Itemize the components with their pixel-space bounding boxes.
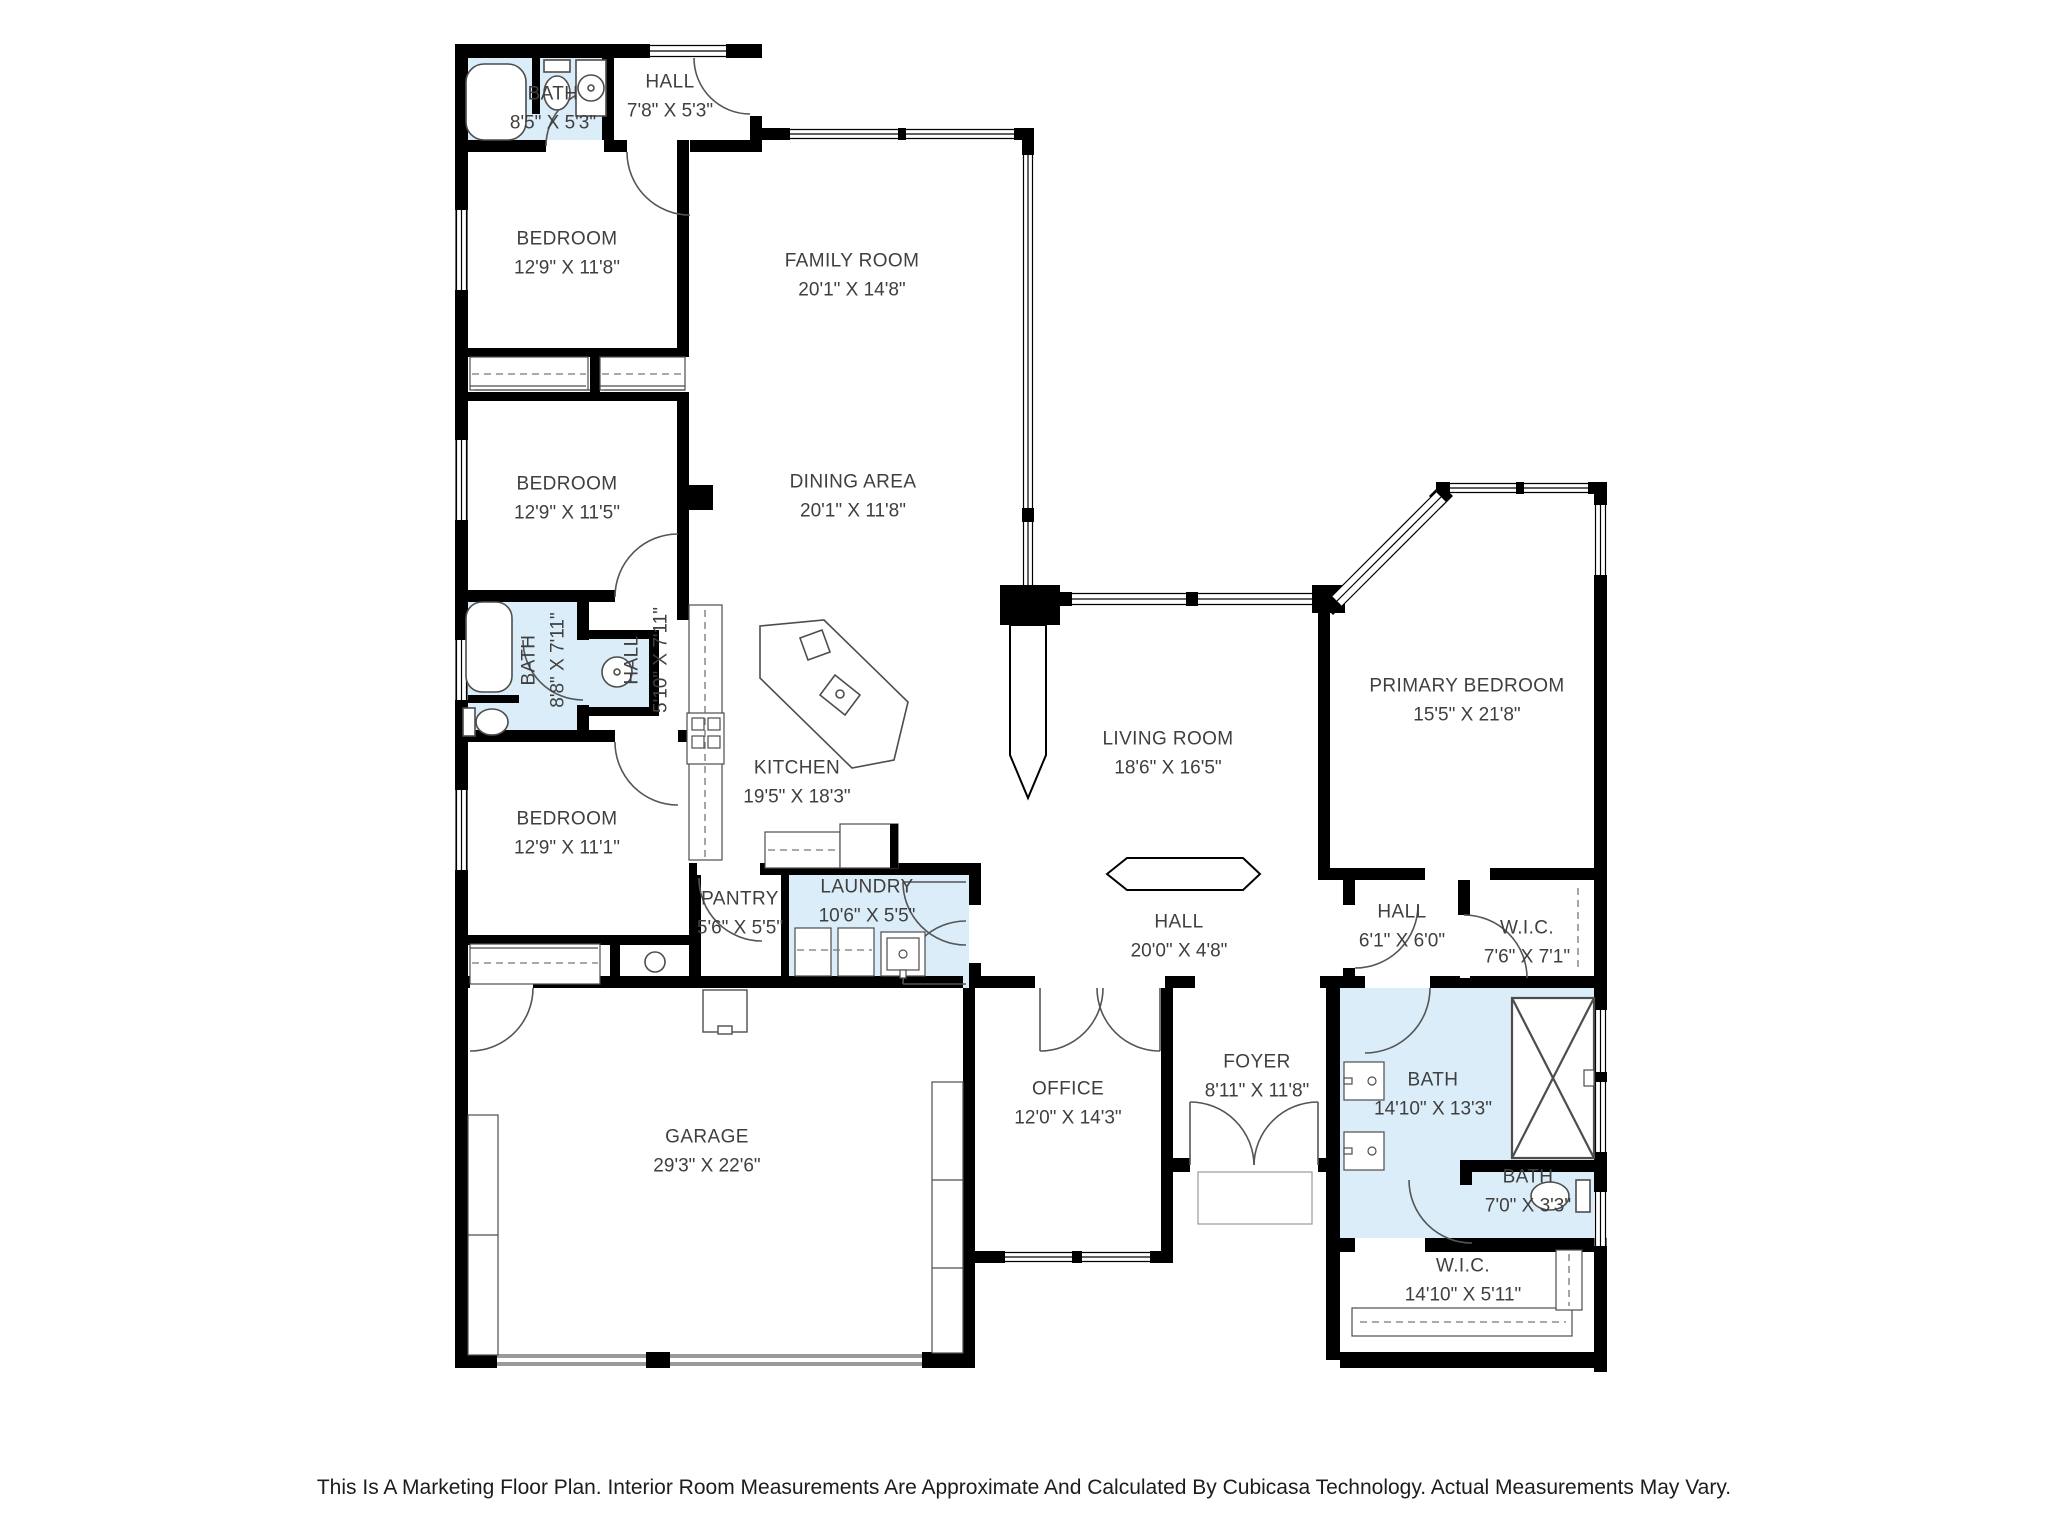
floor-plan-drawing (0, 0, 2048, 1536)
room-label-kitchen: KITCHEN19'5" X 18'3" (743, 755, 850, 812)
room-label-pantry: PANTRY5'6" X 5'5" (697, 886, 783, 943)
room-label-garage: GARAGE29'3" X 22'6" (653, 1124, 760, 1181)
shower-icon (1512, 998, 1594, 1158)
window-top-hall (650, 45, 726, 58)
kitchen-island (760, 620, 908, 768)
bathtub-icon (466, 602, 512, 692)
room-label-bedroom-3: BEDROOM12'9" X 11'1" (514, 806, 620, 863)
door-foyer-entry-double (1190, 1102, 1318, 1165)
room-label-bedroom-1: BEDROOM12'9" X 11'8" (514, 226, 620, 283)
hall-living-partial-wall (1107, 858, 1260, 890)
room-label-bedroom-2: BEDROOM12'9" X 11'5" (514, 471, 620, 528)
vanity-sink-icon (1344, 1132, 1384, 1170)
room-label-bath-2: BATH8'8" X 7'11" (516, 612, 573, 707)
water-softener-icon (645, 952, 665, 972)
garage-doors (497, 1354, 922, 1366)
washer-icon (795, 928, 831, 976)
room-label-bath-1: BATH8'5" X 5'3" (510, 81, 596, 138)
room-label-dining-area: DINING AREA20'1" X 11'8" (790, 469, 917, 526)
room-label-primary-bath: BATH14'10" X 13'3" (1374, 1067, 1492, 1124)
room-label-living-room: LIVING ROOM18'6" X 16'5" (1102, 726, 1233, 783)
disclaimer-text: This Is A Marketing Floor Plan. Interior… (0, 1476, 2048, 1500)
room-label-office: OFFICE12'0" X 14'3" (1014, 1076, 1121, 1133)
room-label-primary-bedroom: PRIMARY BEDROOM15'5" X 21'8" (1369, 673, 1564, 730)
laundry-sink-icon (881, 932, 925, 978)
dryer-icon (838, 928, 874, 976)
door-bedroom2 (615, 534, 678, 597)
toilet-icon (463, 708, 508, 736)
entry-step (1198, 1172, 1312, 1224)
room-label-wic-1: W.I.C.7'6" X 7'1" (1484, 915, 1570, 972)
room-label-hall-1: HALL7'8" X 5'3" (627, 69, 713, 126)
room-label-wic-2: W.I.C.14'10" X 5'11" (1405, 1253, 1522, 1310)
room-label-family-room: FAMILY ROOM20'1" X 14'8" (785, 248, 920, 305)
room-label-laundry: LAUNDRY10'6" X 5'5" (819, 874, 916, 931)
door-office-double (1040, 988, 1160, 1051)
room-label-hall-2: HALL5'10" X 7'11" (619, 607, 676, 713)
window-primary-diagonal (1332, 492, 1446, 606)
room-label-foyer: FOYER8'11" X 11'8" (1205, 1049, 1310, 1106)
floor-plan-page: BATH8'5" X 5'3" HALL7'8" X 5'3" BEDROOM1… (0, 0, 2048, 1536)
room-label-hall-6: HALL6'1" X 6'0" (1359, 899, 1445, 956)
water-heater-icon (703, 990, 747, 1034)
door-bedroom3 (615, 742, 678, 805)
room-label-small-bath: BATH7'0" X 3'3" (1485, 1164, 1571, 1221)
room-label-hall-20: HALL20'0" X 4'8" (1131, 909, 1228, 966)
kitchen-living-partial-wall (1010, 625, 1046, 798)
door-garage (470, 988, 533, 1051)
